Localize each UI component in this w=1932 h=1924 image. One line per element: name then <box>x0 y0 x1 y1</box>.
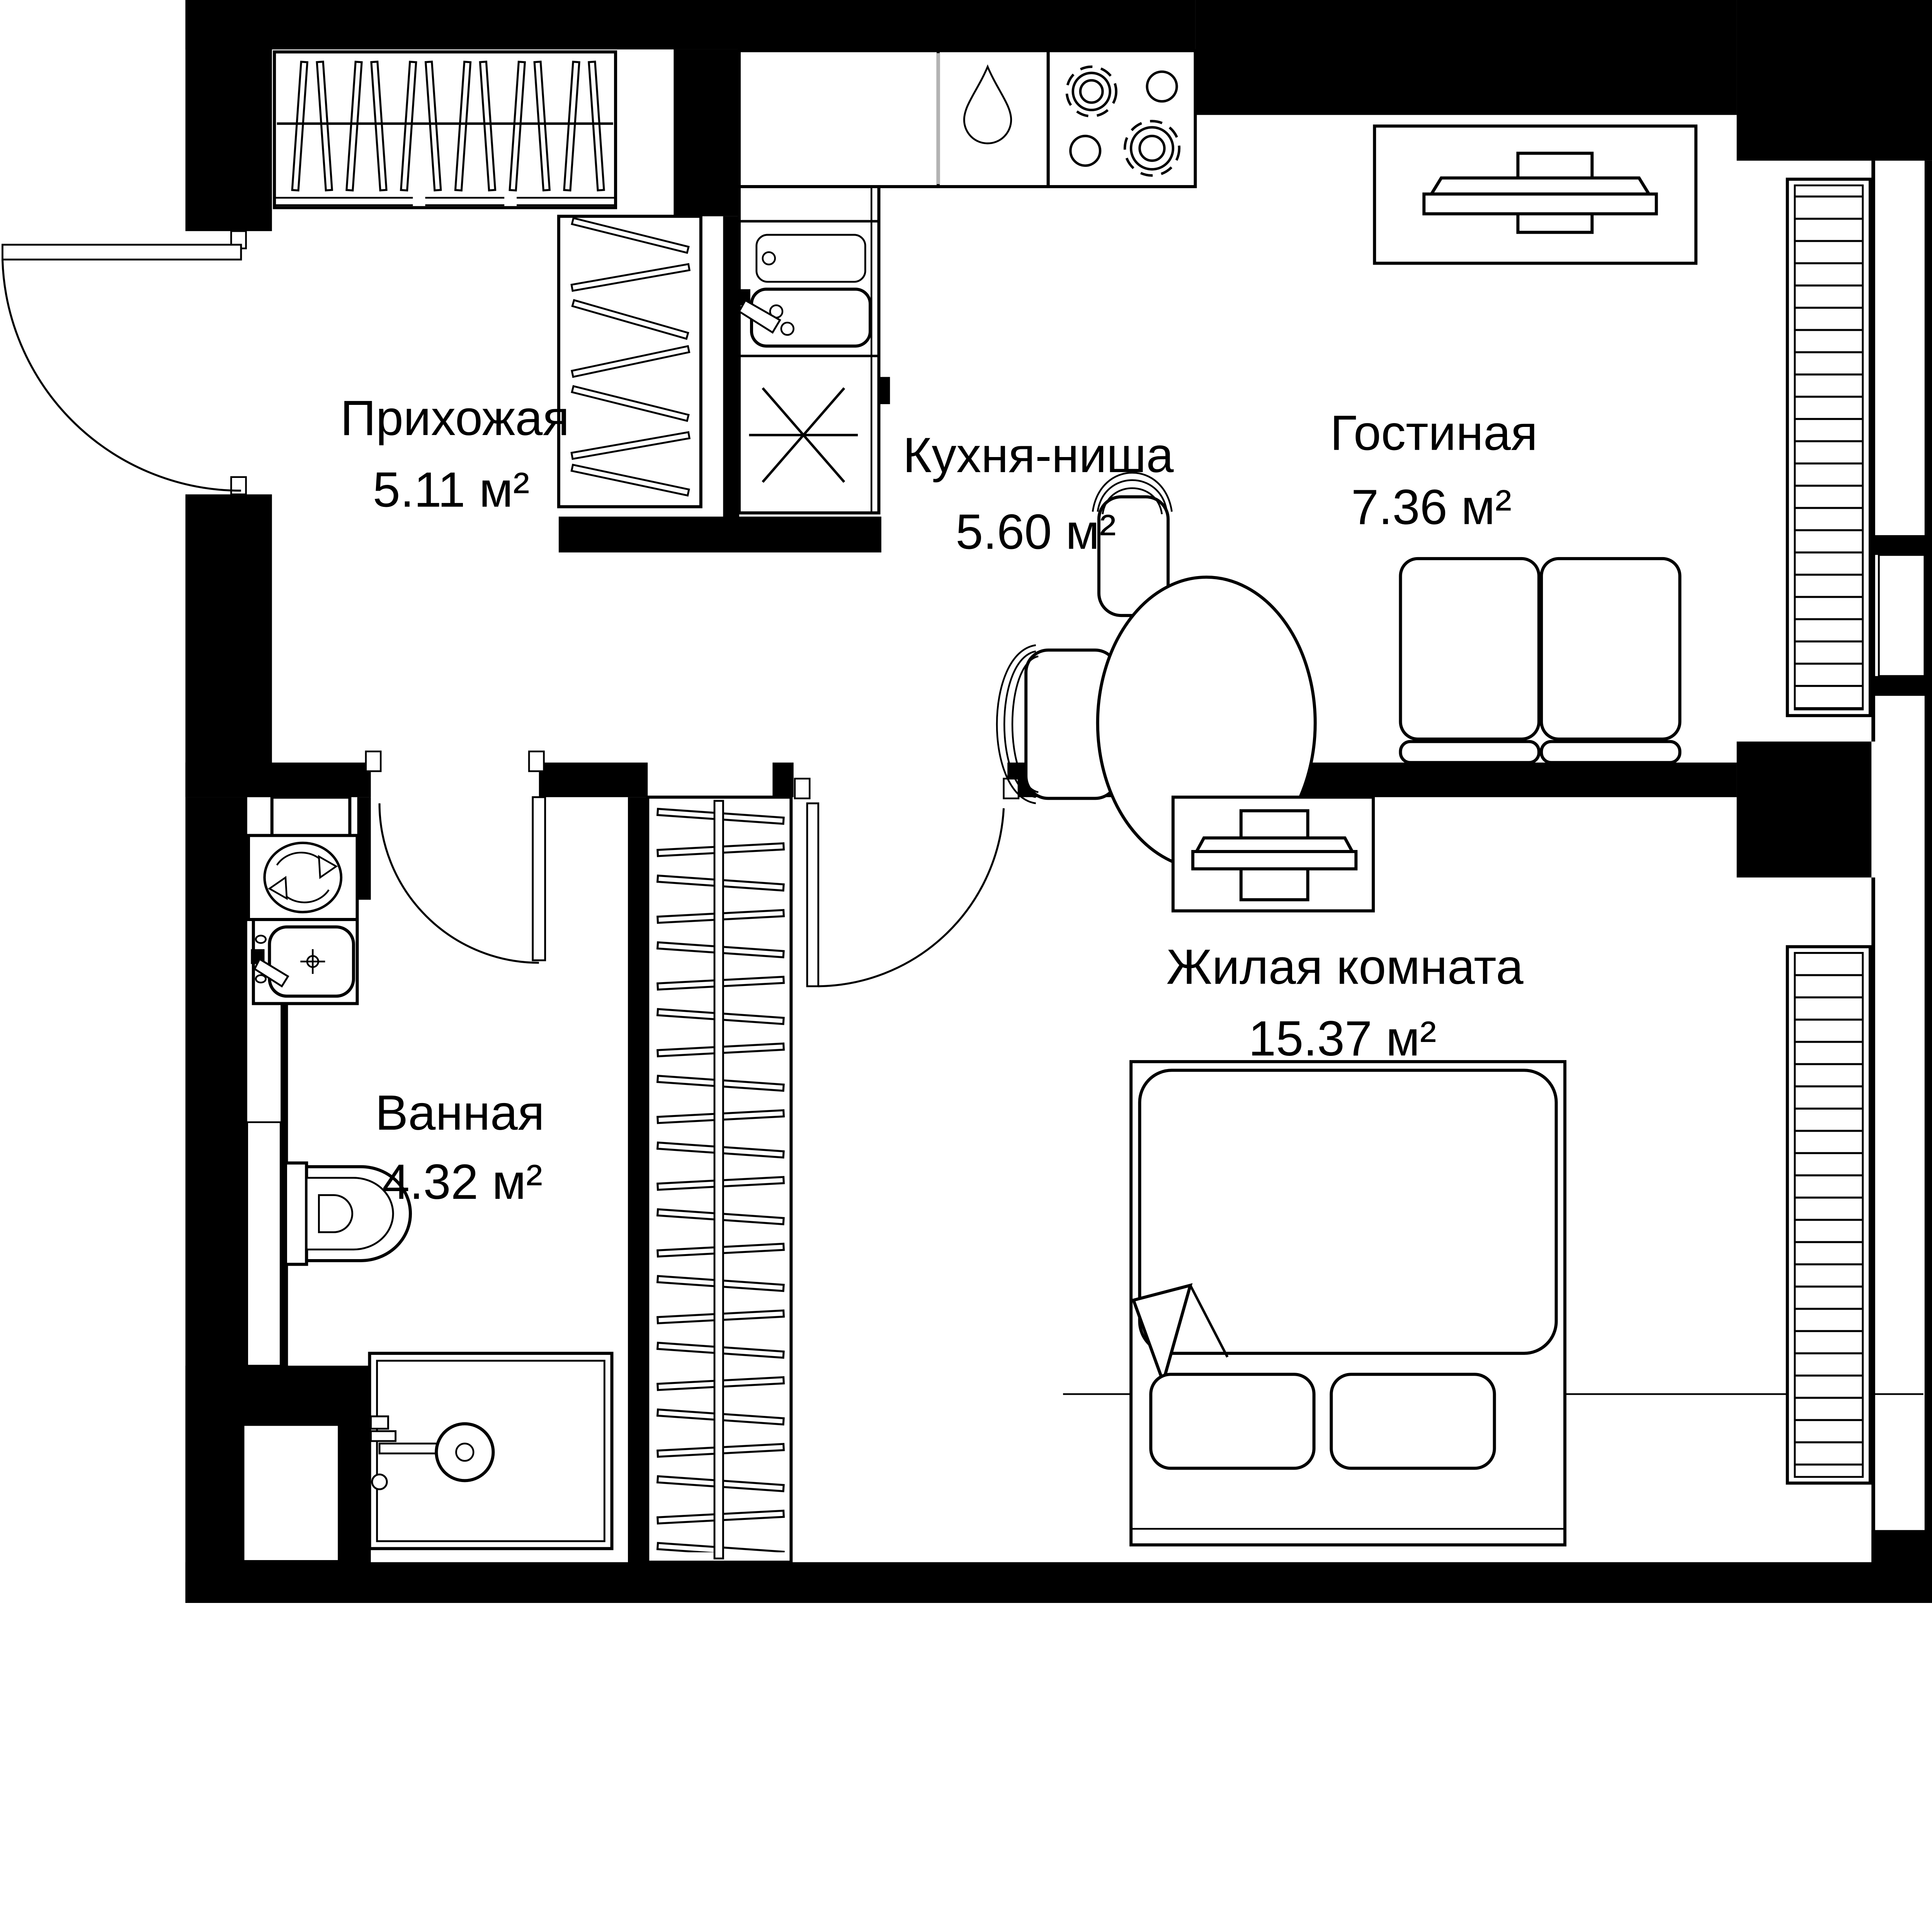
bathroom-door <box>366 751 545 963</box>
glazing-pier-1 <box>1871 535 1932 555</box>
sofa-cushion-left <box>1400 559 1539 739</box>
tv-console-living <box>1374 126 1696 263</box>
loggia-window-frame <box>1879 555 1924 676</box>
mid-wall-left <box>185 763 371 797</box>
room-label-living-name: Гостиная <box>1330 405 1537 461</box>
kitchen-wall-lower <box>723 216 739 519</box>
sofa-back-left <box>1400 741 1539 762</box>
sofa-back-right <box>1541 741 1680 762</box>
bathroom-door-swing-arc <box>379 803 539 963</box>
shaft-niche <box>247 1122 281 1366</box>
toilet-tank <box>286 1163 306 1264</box>
bathroom-sink <box>251 920 357 1004</box>
bed-mattress <box>1139 1070 1556 1353</box>
tv-screen-icon <box>1424 194 1656 214</box>
exterior-notch <box>243 1425 338 1561</box>
washing-machine <box>248 836 357 920</box>
sliding-wardrobe <box>559 216 701 507</box>
outer-glazing-line <box>1925 161 1932 1562</box>
sofa-cushion-right <box>1541 559 1680 739</box>
tv-screen-top <box>1431 178 1649 194</box>
room-label-bathroom-area: 4.32 м² <box>382 1154 543 1210</box>
shower-mixer <box>371 1416 388 1429</box>
glazing-pier-3 <box>1871 1530 1932 1562</box>
mid-wall-stub <box>772 763 793 797</box>
bedroom-door-jamb-left <box>795 778 810 798</box>
tv-screen-top <box>1197 838 1352 852</box>
room-label-bedroom-name: Жилая комната <box>1166 939 1524 994</box>
entrance-door-swing-arc <box>2 260 241 491</box>
bath-cabinet <box>272 797 350 835</box>
toilet-flush <box>319 1195 352 1232</box>
shower-knob <box>372 1474 387 1489</box>
left-wall-middle <box>185 495 272 797</box>
tv-screen-icon <box>1193 852 1356 869</box>
kitchen-wall-upper <box>673 49 739 216</box>
vent-stub <box>879 377 890 404</box>
sofa <box>1400 559 1680 763</box>
bathroom-door-jamb-right <box>529 751 544 771</box>
kitchen-sink-cabinet <box>737 187 879 513</box>
floor-plan: Прихожая 5.11 м² Кухня-ниша 5.60 м² Гост… <box>0 0 1932 1603</box>
kitchen-bottom-wall <box>559 517 881 552</box>
mid-wall-center <box>539 763 648 797</box>
room-label-bedroom-area: 15.37 м² <box>1248 1011 1436 1066</box>
top-wall <box>185 0 1196 49</box>
top-right-corner-wall <box>1737 0 1932 161</box>
room-label-kitchen-name: Кухня-ниша <box>903 428 1174 483</box>
bathroom-door-leaf <box>533 797 545 960</box>
room-label-bathroom-name: Ванная <box>375 1085 544 1140</box>
bath-door-jamb-wall <box>357 797 371 900</box>
bedroom-door <box>795 778 1019 986</box>
hanger-rods <box>287 57 605 195</box>
loggia-inner-line-lower <box>1871 877 1875 1562</box>
hanger-wardrobe <box>274 52 616 207</box>
kitchen-counter <box>739 51 938 187</box>
closet <box>648 797 791 1562</box>
entrance-jamb-bottom <box>231 477 246 495</box>
top-wall-thick <box>1195 0 1736 115</box>
loggia-inner-line-upper <box>1871 161 1875 742</box>
entrance-door-leaf <box>2 245 241 259</box>
room-label-living-area: 7.36 м² <box>1351 479 1512 535</box>
cooktop-icon <box>1048 51 1196 187</box>
entrance-door <box>2 231 246 494</box>
radiator-bedroom <box>1787 947 1870 1483</box>
double-bed <box>1131 1062 1565 1545</box>
left-wall-upper <box>185 0 272 231</box>
shower-head-icon <box>436 1424 493 1480</box>
bathroom-door-jamb-left <box>366 751 381 771</box>
pillow-right <box>1331 1374 1494 1468</box>
bottom-wall <box>185 1562 1932 1603</box>
closet-rail <box>714 801 723 1559</box>
room-label-hallway-area: 5.11 м² <box>373 462 530 518</box>
sink-drainer <box>757 235 866 282</box>
shower <box>369 1353 612 1548</box>
pillow-left <box>1151 1374 1314 1468</box>
bedroom-door-swing-arc <box>818 808 1004 986</box>
room-label-kitchen-area: 5.60 м² <box>956 504 1116 559</box>
radiator-living <box>1787 179 1870 716</box>
room-label-hallway-name: Прихожая <box>340 391 570 446</box>
bedroom-door-leaf <box>807 803 818 986</box>
tv-console-bedroom <box>1173 797 1373 911</box>
glazing-pier-2 <box>1871 676 1932 696</box>
right-mid-block <box>1737 741 1872 877</box>
closet-left-wall <box>628 797 648 1562</box>
